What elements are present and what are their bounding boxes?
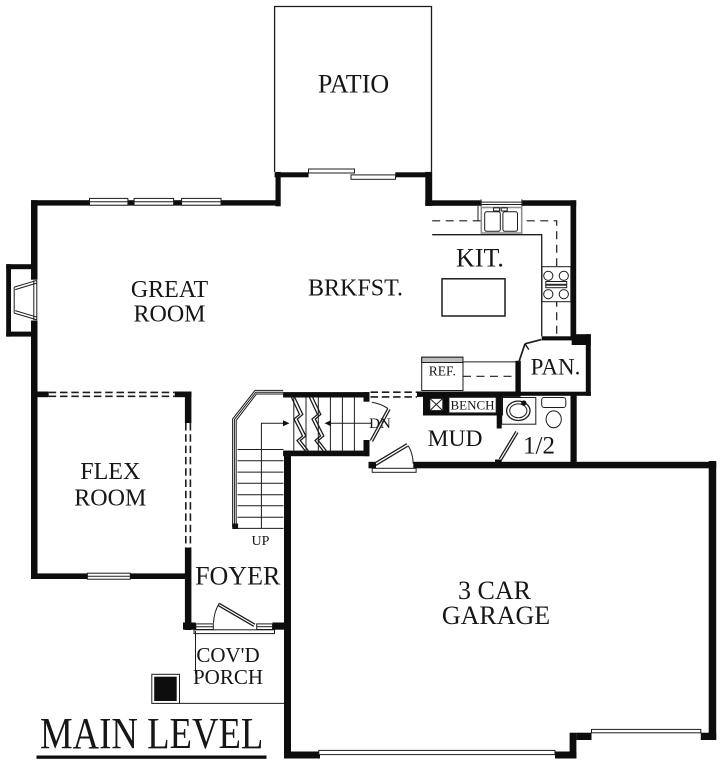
svg-text:BRKFST.: BRKFST.	[308, 275, 403, 301]
svg-text:DN: DN	[369, 416, 391, 432]
svg-text:UP: UP	[252, 534, 270, 549]
svg-text:KIT.: KIT.	[456, 244, 504, 273]
svg-text:MUD: MUD	[428, 426, 483, 452]
svg-text:ROOM: ROOM	[74, 485, 146, 511]
svg-text:GREAT: GREAT	[131, 277, 209, 303]
svg-text:1/2: 1/2	[523, 432, 555, 459]
svg-text:GARAGE: GARAGE	[442, 601, 550, 630]
svg-text:ROOM: ROOM	[133, 301, 205, 327]
svg-text:BENCH: BENCH	[450, 398, 494, 413]
svg-text:PORCH: PORCH	[193, 665, 263, 689]
svg-text:FLEX: FLEX	[80, 459, 140, 485]
svg-text:FOYER: FOYER	[195, 562, 281, 591]
svg-text:PAN.: PAN.	[531, 355, 581, 380]
svg-text:COV'D: COV'D	[196, 643, 259, 667]
svg-text:MAIN LEVEL: MAIN LEVEL	[40, 709, 263, 758]
svg-text:REF.: REF.	[429, 363, 456, 378]
svg-text:PATIO: PATIO	[318, 70, 389, 99]
